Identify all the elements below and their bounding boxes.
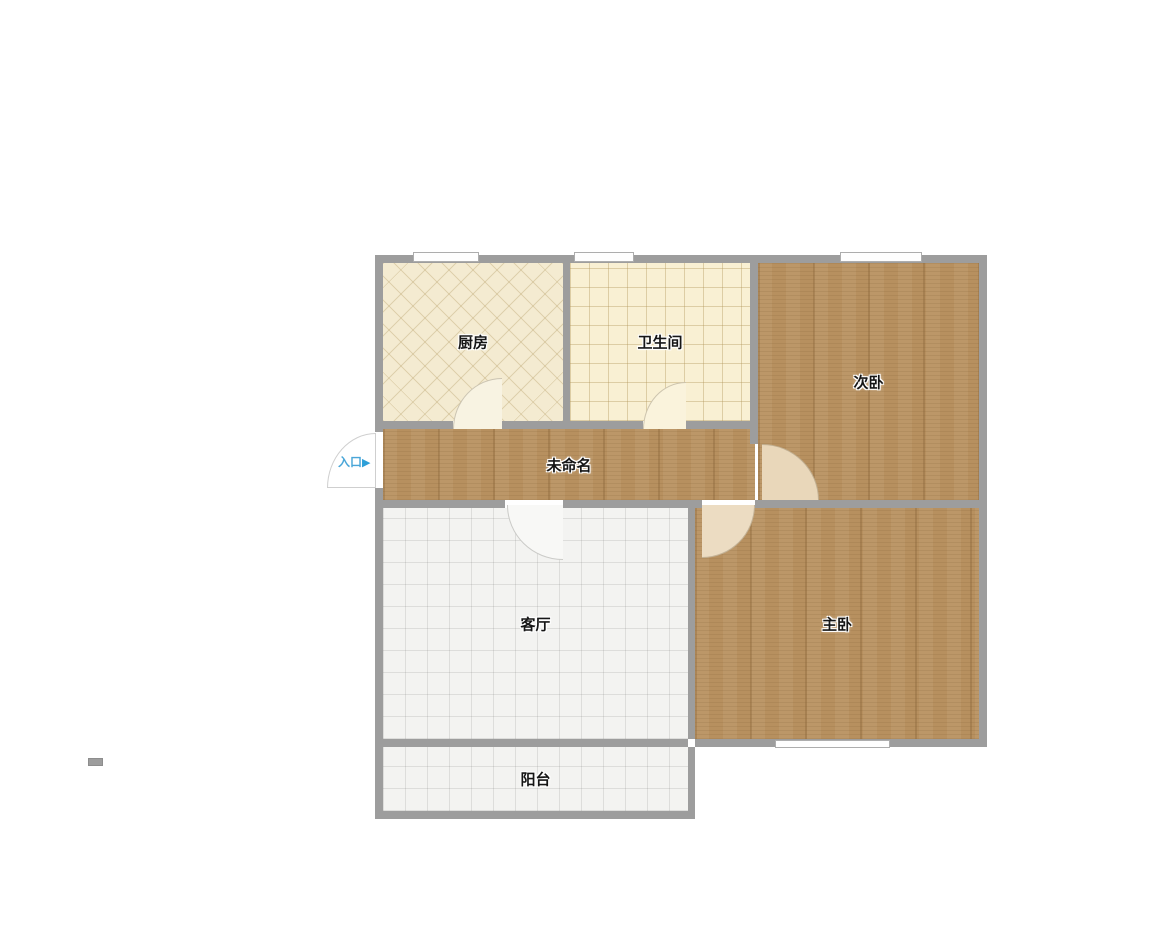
window-master-bedroom xyxy=(775,740,890,748)
wall-mid-right xyxy=(755,500,987,508)
entrance-label: 入口▶ xyxy=(338,453,370,470)
wall-bathroom-bedroom-divider xyxy=(750,263,758,444)
wall-bathroom-bottom-left xyxy=(563,421,643,429)
room-label-master-bedroom: 主卧 xyxy=(822,613,852,634)
wall-living-master-divider xyxy=(688,508,695,739)
room-label-living-room: 客厅 xyxy=(520,613,550,634)
entrance-text: 入口 xyxy=(338,455,362,469)
wall-kitchen-bottom-left xyxy=(375,421,453,429)
wall-mid-left xyxy=(375,500,505,508)
wall-kitchen-bottom-right xyxy=(502,421,563,429)
stray-wall-fragment xyxy=(88,758,103,766)
window-bathroom xyxy=(574,252,634,262)
room-label-hallway: 未命名 xyxy=(546,454,591,475)
room-label-balcony: 阳台 xyxy=(520,769,550,790)
room-hallway[interactable]: 未命名 xyxy=(383,429,755,500)
room-balcony[interactable]: 阳台 xyxy=(383,747,688,811)
wall-balcony-bottom xyxy=(375,811,695,819)
wall-kitchen-bathroom-divider xyxy=(563,263,570,429)
room-label-secondary-bedroom: 次卧 xyxy=(853,371,883,392)
wall-left-lower xyxy=(375,488,383,819)
wall-bathroom-bottom-right xyxy=(686,421,750,429)
wall-mid-center xyxy=(563,500,702,508)
floorplan-canvas: 厨房 卫生间 次卧 未命名 客厅 主卧 阳台 xyxy=(0,0,1156,945)
entrance-arrow-icon: ▶ xyxy=(362,456,370,469)
window-kitchen xyxy=(413,252,479,262)
window-secondary-bedroom xyxy=(840,252,922,262)
wall-balcony-right xyxy=(688,747,695,811)
wall-living-balcony-divider xyxy=(383,739,688,747)
room-label-kitchen: 厨房 xyxy=(458,332,488,353)
room-label-bathroom: 卫生间 xyxy=(637,332,682,353)
wall-left-upper xyxy=(375,255,383,432)
